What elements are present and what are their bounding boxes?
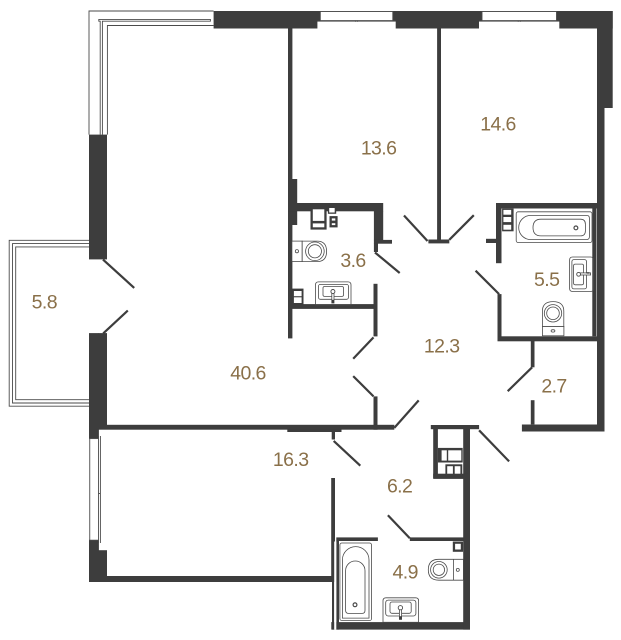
svg-text:14.6: 14.6	[480, 113, 516, 135]
svg-text:12.3: 12.3	[424, 335, 460, 357]
svg-text:6.2: 6.2	[387, 475, 412, 497]
svg-text:4.9: 4.9	[393, 561, 418, 583]
svg-text:5.5: 5.5	[534, 269, 560, 291]
svg-text:40.6: 40.6	[230, 363, 266, 385]
svg-text:16.3: 16.3	[273, 449, 309, 471]
svg-text:5.8: 5.8	[32, 291, 57, 313]
svg-text:2.7: 2.7	[541, 375, 566, 397]
svg-text:3.6: 3.6	[340, 250, 365, 272]
svg-text:13.6: 13.6	[361, 138, 397, 160]
